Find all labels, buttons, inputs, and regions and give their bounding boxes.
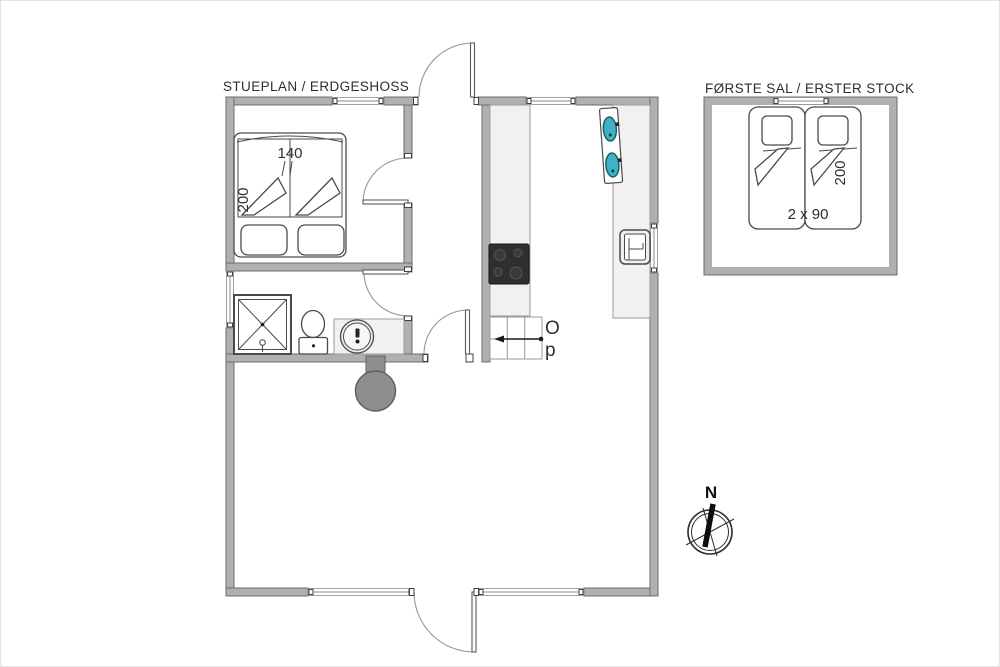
first-floor-title: FØRSTE SAL / ERSTER STOCK <box>705 81 915 96</box>
bedroom-door <box>363 154 412 208</box>
tap <box>356 329 360 338</box>
window <box>478 589 584 596</box>
bathroom-fixtures <box>234 295 404 354</box>
wall-segment <box>404 316 412 354</box>
wall-segment <box>650 97 658 223</box>
wall-segment <box>482 105 490 362</box>
bed-length-label: 200 <box>235 187 252 212</box>
bathroom-door <box>363 267 412 321</box>
kitchen <box>489 105 650 318</box>
floorplan-drawing: STUEPLAN / ERDGESHOSS <box>1 1 1000 667</box>
washbasin <box>334 319 404 354</box>
wall-segment <box>478 97 526 105</box>
stairs-up-label-line2: p <box>545 340 556 361</box>
first-floor-plan: FØRSTE SAL / ERSTER STOCK 200 2 x 90 <box>704 81 915 275</box>
wall-segment <box>226 328 234 596</box>
wall-segment <box>226 354 428 362</box>
window <box>332 98 384 105</box>
wall-segment <box>650 273 658 596</box>
ground-floor-title: STUEPLAN / ERDGESHOSS <box>223 79 409 94</box>
double-bed: 140 200 <box>234 133 346 257</box>
wall-segment <box>576 97 658 105</box>
window <box>773 98 829 105</box>
compass-north-label: N <box>705 483 717 502</box>
dishwasher <box>620 230 650 264</box>
pillow <box>762 116 792 145</box>
entrance-door <box>414 43 479 105</box>
cooktop <box>489 244 529 284</box>
footstool <box>298 225 344 255</box>
window <box>308 589 414 596</box>
staircase: O p <box>490 317 560 361</box>
wall-cap <box>466 354 473 362</box>
compass-rose: N <box>686 483 734 556</box>
window <box>526 98 576 105</box>
wall-segment <box>584 588 658 596</box>
window <box>227 271 234 328</box>
first-floor-bed-size-label: 2 x 90 <box>788 206 829 223</box>
floorplan-canvas: STUEPLAN / ERDGESHOSS <box>0 0 1000 667</box>
wall-segment <box>404 105 412 158</box>
wall-segment <box>404 203 412 272</box>
wood-stove <box>356 356 396 411</box>
pillow <box>818 116 848 145</box>
toilet <box>299 311 328 355</box>
patio-door <box>410 589 479 653</box>
wall-segment <box>226 588 308 596</box>
hall-door <box>423 310 470 362</box>
wall-segment <box>226 97 234 271</box>
wall-segment <box>384 97 418 105</box>
first-floor-bed-length-label: 200 <box>832 160 849 185</box>
bed-width-label: 140 <box>277 145 302 162</box>
stairs-up-label-line1: O <box>545 318 560 339</box>
wall-segment <box>226 97 332 105</box>
window <box>651 223 658 273</box>
footstool <box>241 225 287 255</box>
ground-floor-plan: STUEPLAN / ERDGESHOSS <box>223 43 658 652</box>
shower <box>234 295 291 354</box>
